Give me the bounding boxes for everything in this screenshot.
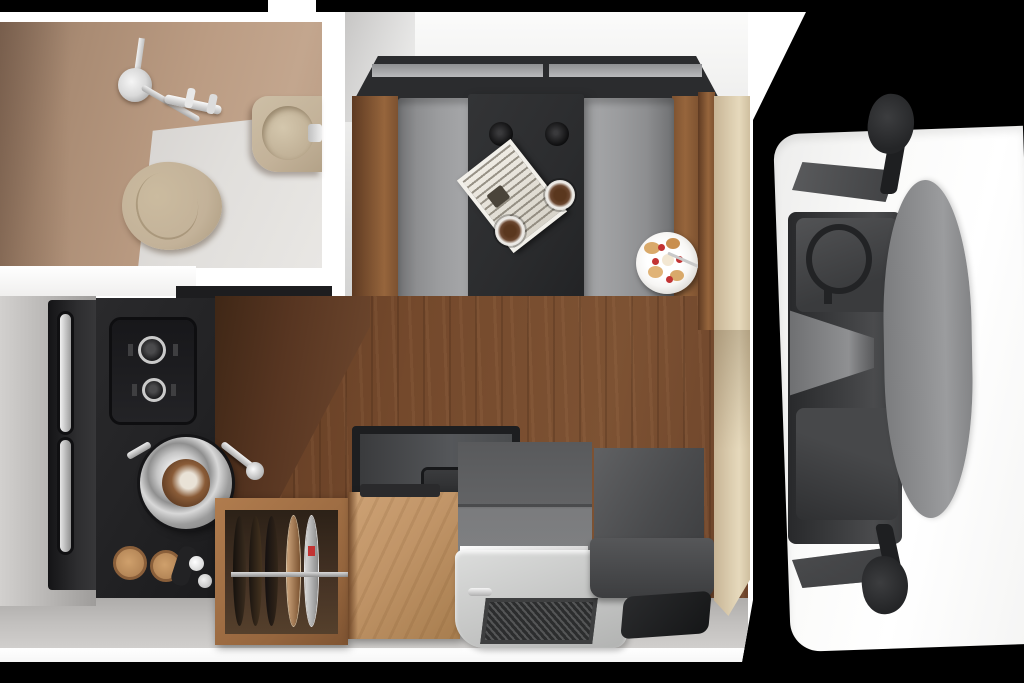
partition-wood-strip <box>698 92 715 330</box>
burner <box>142 378 166 402</box>
sink-bowl <box>162 459 210 507</box>
magazine-photo <box>486 185 510 209</box>
freezer-handle <box>60 440 71 552</box>
plate <box>287 516 300 626</box>
faucet-base <box>246 462 264 480</box>
plate <box>265 516 278 626</box>
plate-cabinet-interior <box>225 510 338 634</box>
partition-shading <box>714 330 750 450</box>
steering-column <box>824 288 832 304</box>
wood-cabinet-edge <box>348 492 358 639</box>
plate <box>305 516 318 626</box>
entry-panel <box>458 442 592 554</box>
plate <box>249 516 262 626</box>
tray-handle <box>468 588 492 596</box>
bathroom-wall-shadow <box>0 22 70 268</box>
berry <box>658 244 665 251</box>
coffee-cup <box>495 216 525 246</box>
cutting-board <box>113 546 147 580</box>
cup-holder <box>545 122 569 146</box>
shaker <box>189 556 204 571</box>
refrigerator <box>48 300 102 590</box>
plate <box>233 516 246 626</box>
bench-seat-left <box>398 98 472 310</box>
camper-floorplan-scene <box>0 0 1024 683</box>
toilet-lid-line <box>129 166 205 246</box>
floor-grille <box>480 598 598 644</box>
two-burner-hob <box>112 320 194 422</box>
camper-wall-bottom <box>0 648 745 683</box>
plate-cabinet <box>215 498 348 645</box>
steering-wheel <box>806 224 872 294</box>
burner <box>138 336 166 364</box>
berry <box>652 258 659 265</box>
breakfast-plate <box>636 232 698 294</box>
pastry <box>666 238 680 249</box>
side-seat-back <box>594 448 704 548</box>
side-seat-cushion <box>590 538 714 598</box>
dinette-headrest-divider <box>543 62 549 88</box>
pastry <box>648 266 663 278</box>
bathroom-wall-band <box>0 266 196 296</box>
basin-tap-icon <box>308 124 322 142</box>
bathroom <box>0 22 322 268</box>
shaker <box>198 574 212 588</box>
plate-accent <box>308 546 315 556</box>
entry-panel-seam <box>458 504 592 507</box>
wash-basin-bowl <box>262 106 314 160</box>
dinette <box>345 12 748 330</box>
door-mat <box>620 591 711 640</box>
dinette-wood-frame-left <box>352 96 398 322</box>
fridge-handle <box>60 314 71 432</box>
wood-cabinet <box>348 492 460 639</box>
berry <box>666 276 673 283</box>
dinette-headrest-slot <box>372 64 702 77</box>
wash-basin <box>252 96 322 172</box>
plate-rail <box>231 572 351 577</box>
shower-head <box>118 68 152 102</box>
cabinet-top-item <box>360 484 440 497</box>
coffee-cup <box>545 180 575 210</box>
passenger-seat <box>796 408 898 520</box>
